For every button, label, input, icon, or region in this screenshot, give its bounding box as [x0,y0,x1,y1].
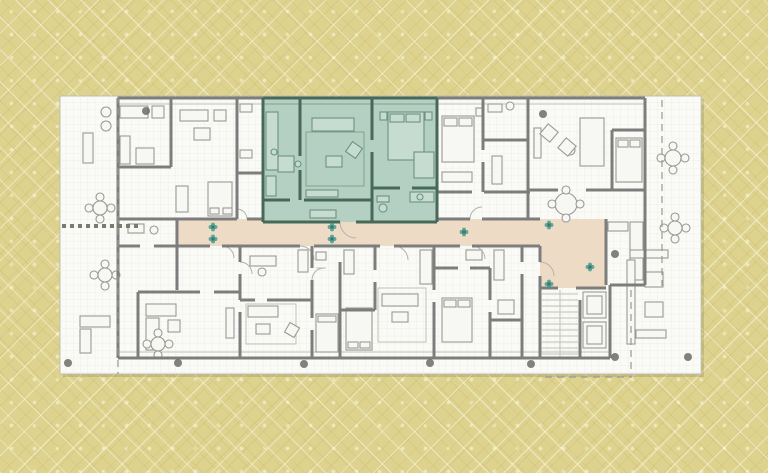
furniture [580,118,604,166]
furniture [258,268,266,276]
furniture [587,326,602,344]
furniture [382,294,418,306]
furniture [608,222,628,231]
column-dot [300,360,308,368]
furniture [562,214,570,222]
furniture [96,215,104,223]
furniture [665,150,681,166]
furniture [194,128,210,140]
furniture [168,320,180,332]
column-dot [174,359,182,367]
furniture [226,308,234,338]
plant-icon [211,237,214,240]
plant-icon [588,265,591,268]
furniture-highlighted [266,176,276,196]
furniture-highlighted [306,190,338,197]
furniture [250,256,276,266]
pergola-column [126,224,130,228]
furniture [298,250,308,272]
furniture [682,224,690,232]
furniture [444,118,457,126]
furniture-highlighted [266,112,278,170]
furniture [248,306,278,317]
furniture-highlighted [326,156,342,167]
furniture [671,213,679,221]
furniture [618,140,628,147]
furniture [120,136,130,164]
floor-plan-page [0,0,768,473]
furniture-highlighted [414,152,434,178]
furniture [681,154,689,162]
column-dot [426,359,434,367]
furniture [96,193,104,201]
furniture [555,193,577,215]
furniture [176,186,188,212]
furniture [442,172,472,182]
furniture [506,102,514,110]
furniture [83,133,93,163]
furniture [101,282,109,290]
pergola-column [102,224,106,228]
furniture-highlighted [380,112,387,120]
furniture [344,250,354,274]
furniture [458,300,470,307]
furniture-highlighted [390,114,404,122]
floor-plan-drawing [0,0,768,473]
furniture [498,300,514,314]
furniture-highlighted [379,204,387,212]
pergola-column [94,224,98,228]
furniture [576,200,584,208]
furniture [348,342,358,348]
furniture-highlighted [295,161,301,167]
furniture [645,302,663,317]
furniture [152,106,164,118]
furniture-highlighted [417,194,423,200]
pergola-column [62,224,66,228]
furniture [101,107,111,117]
pergola-column [78,224,82,228]
pergola-column [110,224,114,228]
corridor-lobby [540,219,606,288]
plant-icon [547,223,550,226]
furniture [143,340,151,348]
furniture [548,200,556,208]
furniture [150,226,158,234]
column-dot [684,353,692,361]
column-dot [611,353,619,361]
column-dot [611,250,619,258]
column-dot [539,110,547,118]
furniture [98,268,112,282]
furniture [669,166,677,174]
furniture [90,271,98,279]
furniture [214,110,226,121]
pergola-column [70,224,74,228]
furniture [223,208,232,214]
furniture [101,121,111,131]
plant-icon [462,230,465,233]
furniture [636,330,666,338]
furniture [669,142,677,150]
furniture [657,154,665,162]
column-dot [527,360,535,368]
furniture [101,260,109,268]
pergola-column [118,224,122,228]
furniture [165,340,173,348]
furniture-highlighted [310,210,336,218]
furniture [316,252,326,260]
furniture [668,221,682,235]
furniture [210,208,219,214]
furniture [488,104,502,112]
plant-icon [330,237,333,240]
furniture [107,204,115,212]
pergola-column [86,224,90,228]
furniture-highlighted [377,196,389,202]
furniture [671,235,679,243]
furniture [587,296,602,314]
furniture [80,316,110,327]
furniture-highlighted [312,118,354,131]
furniture [136,148,154,164]
furniture-highlighted [271,149,277,155]
furniture [154,329,162,337]
furniture [180,110,208,121]
furniture [93,201,107,215]
furniture [492,156,502,184]
furniture [420,250,432,284]
plant-icon [547,282,550,285]
furniture-highlighted [406,114,420,122]
furniture [392,312,408,322]
furniture [630,140,640,147]
furniture [240,150,252,158]
furniture [318,316,336,322]
furniture [660,224,668,232]
furniture [459,118,472,126]
plant-icon [330,225,333,228]
furniture [85,204,93,212]
furniture [240,104,252,112]
column-dot [142,107,150,115]
furniture [562,186,570,194]
column-dot [64,359,72,367]
furniture [534,128,541,158]
furniture [256,324,270,334]
plant-icon [211,225,214,228]
furniture [466,250,482,260]
pergola-column [134,224,138,228]
furniture [494,250,504,280]
furniture [444,300,456,307]
furniture-highlighted [425,112,432,120]
furniture-highlighted [278,156,294,172]
furniture [80,329,91,353]
furniture [151,337,165,351]
furniture [146,304,176,316]
furniture [360,342,370,348]
furniture [645,272,663,287]
